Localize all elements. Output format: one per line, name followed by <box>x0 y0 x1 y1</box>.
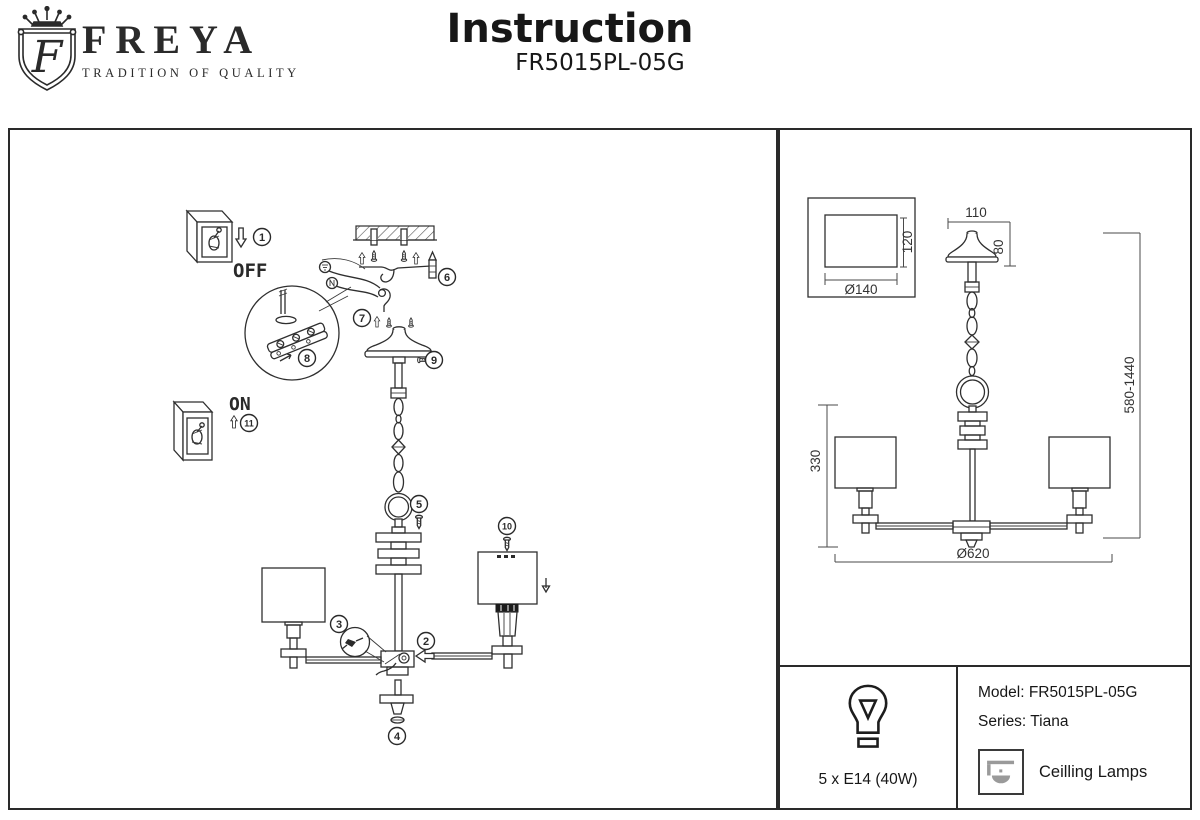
step-5-badge: 5 <box>411 496 428 513</box>
svg-text:3: 3 <box>336 619 342 631</box>
svg-text:5: 5 <box>416 499 422 511</box>
canopy-drawing <box>365 327 433 363</box>
svg-text:9: 9 <box>431 355 437 367</box>
series-line: Series: Tiana <box>978 714 1190 730</box>
dim-cup-height: 80 <box>991 239 1006 254</box>
category-label: Ceilling Lamps <box>1039 763 1147 782</box>
dim-diameter: Ø620 <box>956 546 989 561</box>
hub-drawing <box>306 650 492 675</box>
assembly-instructions-panel: OFF 1 <box>8 128 778 810</box>
dimensions-panel: Ø140 120 110 80 <box>778 128 1192 810</box>
on-label: ON <box>229 394 251 415</box>
brand-tagline: TRADITION OF QUALITY <box>82 66 300 81</box>
step-8-badge: 8 <box>299 350 316 367</box>
step-7-badge: 7 <box>354 310 371 327</box>
step-10-badge: 10 <box>499 518 516 535</box>
wiring-detail-circle <box>245 286 351 380</box>
svg-text:8: 8 <box>304 353 310 365</box>
on-switch-illustration: ON <box>174 394 251 460</box>
model-info-cell: Model: FR5015PL-05G Series: Tiana Ceilli… <box>958 667 1190 808</box>
instruction-sheet: F FREYA TRADITION OF QUALITY Instruction… <box>0 0 1200 820</box>
bottom-finial-drawing <box>380 680 413 723</box>
model-line: Model: FR5015PL-05G <box>978 685 1190 701</box>
crest-letter: F <box>31 32 64 83</box>
brand-name: FREYA <box>82 20 300 60</box>
svg-text:2: 2 <box>423 636 429 648</box>
svg-text:7: 7 <box>359 313 365 325</box>
dim-canopy-diameter: Ø140 <box>844 282 877 297</box>
dimension-diagram: Ø140 120 110 80 <box>780 130 1190 665</box>
svg-text:10: 10 <box>502 522 512 532</box>
svg-text:11: 11 <box>244 419 254 429</box>
dim-lamp-height: 330 <box>808 450 823 473</box>
step-9-badge: 9 <box>426 352 443 369</box>
step-11-badge: 11 <box>241 415 258 432</box>
ceiling-lamp-icon <box>981 752 1021 792</box>
ring-screw-icon <box>416 515 423 528</box>
step-4-badge: 4 <box>389 728 406 745</box>
svg-text:6: 6 <box>444 272 450 284</box>
chain-drawing <box>385 363 412 527</box>
left-lamp-drawing <box>262 568 325 668</box>
ceiling-mount-drawing <box>320 226 438 327</box>
column-discs-drawing <box>376 527 421 651</box>
step-3-badge: 3 <box>331 616 348 633</box>
step-1-badge: 1 <box>254 229 271 246</box>
light-bulb-icon <box>842 683 894 765</box>
dim-cup-width: 110 <box>965 205 987 220</box>
dim-overall-height: 580-1440 <box>1122 356 1137 413</box>
shade-screw-icon <box>504 537 511 550</box>
step-6-badge: 6 <box>439 269 456 286</box>
off-switch-illustration: OFF <box>187 211 267 282</box>
svg-text:1: 1 <box>259 232 265 244</box>
assembly-diagram: OFF 1 <box>10 130 776 808</box>
category-row: Ceilling Lamps <box>978 749 1190 795</box>
right-lamp-drawing <box>478 552 550 668</box>
canopy-plate-drawing: Ø140 120 <box>808 198 915 297</box>
page-model-number: FR5015PL-05G <box>515 50 684 76</box>
ceiling-lamp-iconbox <box>978 749 1024 795</box>
off-label: OFF <box>233 260 267 282</box>
brand-block: FREYA TRADITION OF QUALITY <box>82 20 300 81</box>
bulb-spec-cell: 5 x E14 (40W) <box>780 667 958 808</box>
dim-canopy-height: 120 <box>900 231 915 254</box>
svg-text:4: 4 <box>394 731 401 743</box>
spec-info-area: 5 x E14 (40W) Model: FR5015PL-05G Series… <box>780 665 1190 808</box>
page-title: Instruction <box>447 6 694 52</box>
freya-crest-icon: F <box>12 6 82 94</box>
step-2-badge: 2 <box>418 633 435 650</box>
chandelier-front-drawing: 110 80 <box>808 205 1140 562</box>
bulb-spec-text: 5 x E14 (40W) <box>818 771 917 789</box>
